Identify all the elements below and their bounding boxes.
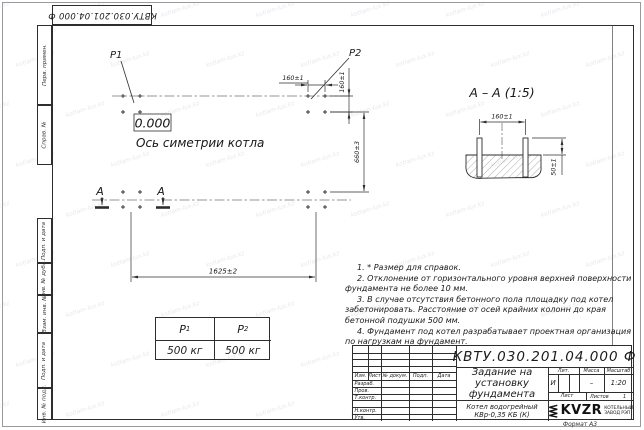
dim-depth	[330, 112, 369, 192]
level-mark: 0.000	[135, 116, 171, 131]
logo-text: KVZR	[561, 403, 603, 418]
tb-col-podp: Подп.	[409, 372, 432, 380]
tb-col-dokum: № докум.	[381, 372, 409, 380]
section-letter-right: А	[156, 185, 165, 198]
note-2: 2. Отклонение от горизонтального уровня …	[345, 274, 632, 295]
plan-view	[92, 58, 369, 282]
tb-col-izm: Изм.	[353, 372, 368, 380]
load-point-1-label: P1	[110, 50, 122, 61]
tb-row-tkontr: Т.контр.	[355, 395, 377, 401]
tb-lit-value: И	[548, 374, 558, 392]
load-table-value-p1: 500 кг	[156, 341, 214, 360]
tb-row-utv: Утв.	[355, 415, 366, 421]
dim-bolt-vertical-text: 160±1	[339, 71, 346, 92]
tb-row-razrab: Разраб.	[355, 381, 375, 387]
boiler-axis-label: Ось симетрии котла	[136, 136, 264, 150]
spring-icon	[548, 403, 559, 419]
section-dim-protrusion-text: 50±1	[551, 158, 558, 175]
dim-depth-text: 660±3	[353, 141, 361, 163]
dim-length-text: 1625±2	[209, 268, 238, 276]
dim-bolt-horizontal-text: 160±1	[282, 75, 303, 82]
tb-scale-value: 1:20	[604, 374, 633, 392]
anchor-bolt-marks	[121, 94, 327, 209]
tb-row-nkontr: Н.контр.	[355, 408, 377, 414]
tb-title: Задание на установку фундамента	[456, 367, 548, 400]
load-table-header-p1: P1	[156, 318, 214, 341]
load-table-col-p2: P2 500 кг	[214, 318, 272, 359]
tb-sheet-label: Лист	[548, 392, 586, 400]
load-table-value-p2: 500 кг	[215, 341, 272, 360]
tb-scale-label: Масштаб	[604, 367, 633, 374]
tb-col-data: Дата	[432, 372, 456, 380]
tb-sheets-label: Листов	[590, 394, 609, 400]
tb-doc-number: КВТУ.030.201.04.000 Ф	[456, 346, 633, 367]
format-label: Формат А3	[520, 421, 640, 428]
tb-lit-label: Лит.	[548, 367, 579, 374]
note-1: 1. * Размер для справок.	[345, 263, 632, 274]
tb-row-prov: Пров.	[355, 388, 370, 394]
logo-subtitle: КОТЕЛЬНЫЙ ЗАВОД РЭП	[604, 406, 633, 416]
kvzr-logo: KVZR КОТЕЛЬНЫЙ ЗАВОД РЭП	[548, 400, 633, 421]
tb-mass-value: –	[579, 374, 604, 392]
section-title: А – А (1:5)	[468, 85, 534, 100]
title-block: Изм. Лист № докум. Подп. Дата Разраб. Пр…	[352, 345, 632, 420]
section-dim-bolt-spacing	[480, 119, 526, 135]
load-point-2-label: P2	[349, 48, 361, 59]
tb-product: Котел водогрейный КВр-0,35 КБ (К)	[456, 400, 548, 421]
load-table: P1 500 кг P2 500 кг	[155, 317, 270, 360]
load-table-header-p2: P2	[215, 318, 272, 341]
note-3: 3. В случае отсутствия бетонного пола пл…	[345, 295, 632, 327]
section-cut-marks	[95, 197, 170, 208]
tb-sheets-value: 1	[623, 394, 626, 400]
section-dim-bolt-spacing-text: 160±1	[491, 114, 512, 121]
tb-col-list: Лист	[368, 372, 381, 380]
section-letter-left: А	[95, 185, 104, 198]
notes: 1. * Размер для справок. 2. Отклонение о…	[345, 263, 632, 348]
load-table-col-p1: P1 500 кг	[156, 318, 214, 359]
tb-mass-label: Масса	[579, 367, 604, 374]
